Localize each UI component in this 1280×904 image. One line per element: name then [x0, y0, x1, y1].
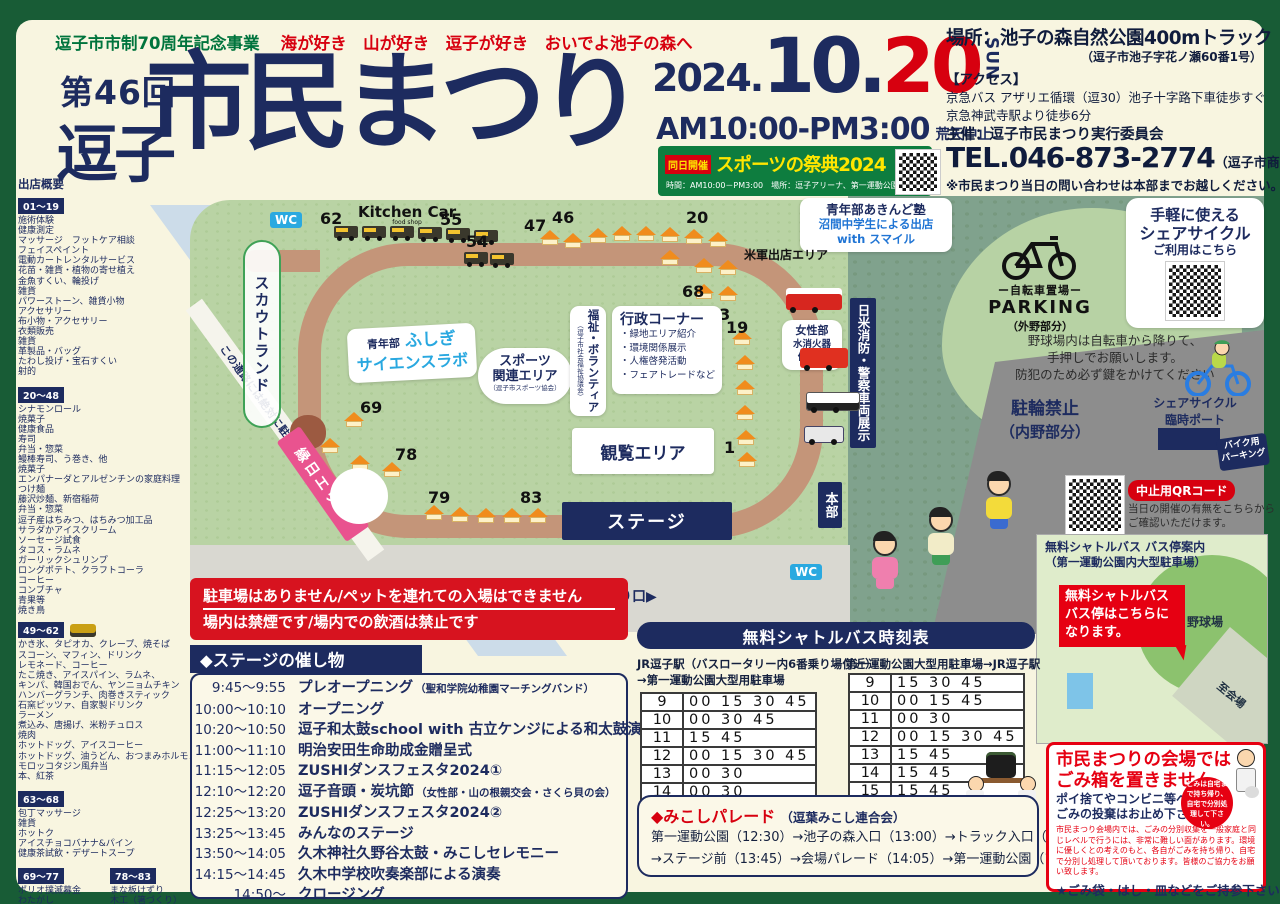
bicycle-parking-label: ー自転車置場ー — [988, 282, 1092, 298]
share-port-line1: シェアサイクル — [1140, 396, 1250, 411]
booth-tent-icon — [588, 228, 608, 243]
sports-qr-code — [896, 150, 940, 194]
women-line1: 女性部 — [782, 324, 842, 338]
garbage-body-text: 市民まつり会場内では、ごみの分別収集を一般家庭と同じレベルで行うには、非常に難し… — [1056, 825, 1256, 878]
science-lab-box: 青年部 ふしぎ サイエンスラボ — [347, 323, 478, 384]
timetable-minutes: 00 30 — [683, 765, 816, 783]
program-title: 久木神社久野谷太鼓・みこしセレモニー — [298, 844, 559, 865]
timetable-row: 12 00 15 30 45 — [641, 747, 816, 765]
booth-number-54: 54 — [466, 232, 488, 251]
booth-number-68: 68 — [682, 282, 704, 301]
booth-item: 木工（箸づくり） — [110, 896, 182, 904]
fire-truck-icon — [786, 288, 842, 310]
program-title: 明治安田生命助成金贈呈式 — [298, 741, 472, 762]
rules-line-1: 駐車場はありません/ペットを連れての入場はできません — [203, 584, 615, 610]
program-time: 13:25～13:45 — [192, 824, 286, 845]
timetable-hour: 9 — [641, 693, 683, 711]
timetable-minutes: 00 15 30 45 — [891, 728, 1024, 746]
kitchen-truck-icon — [362, 226, 386, 238]
stage-program-row: 11:00～11:10 明治安田生命助成金贈呈式 — [192, 741, 626, 762]
booth-number-20: 20 — [686, 208, 708, 227]
stage-program-row: 14:50～ クロージング — [192, 885, 626, 904]
booth-tent-icon — [502, 508, 522, 523]
share-cycle-box: 手軽に使える シェアサイクル ご利用はこちら — [1126, 198, 1264, 328]
kitchen-truck-icon — [490, 253, 514, 265]
stage-program-row: 13:25～13:45 みんなのステージ — [192, 824, 626, 845]
booth-item: 雑貨 — [18, 337, 190, 347]
program-time: 13:50～14:05 — [192, 844, 286, 865]
minimap-title-line2: （第一運動公園内大型駐車場） — [1045, 555, 1206, 570]
parade-org: （逗葉みこし連合会） — [780, 810, 905, 825]
sports-area-cloud: スポーツ 関連エリア （逗子市スポーツ協会） — [478, 348, 572, 404]
cyclist-illustration — [1182, 340, 1252, 396]
booth-item: ホットク — [18, 829, 190, 839]
kitchen-truck-icon — [418, 227, 442, 239]
gov-corner-item: ・フェアトレードなど — [620, 369, 722, 383]
booth-tent-icon — [563, 233, 583, 248]
share-cycle-line3: ご利用はこちら — [1126, 243, 1264, 258]
viewing-area-label: 観覧エリア — [601, 439, 686, 464]
booth-tent-icon — [718, 260, 738, 275]
cancel-qr-note: 当日の開催の有無をこちらから ご確認いただけます。 — [1128, 502, 1275, 530]
program-title: 久木中学校吹奏楽部による演奏 — [298, 865, 501, 886]
booth-item: 布小物・アクセサリー — [18, 317, 190, 327]
timetable-minutes: 00 30 — [891, 710, 1024, 728]
booth-item: アイスチョコバナナ&パイン — [18, 839, 190, 849]
booth-item: 健康測定 — [18, 226, 190, 236]
booth-tent-icon — [528, 508, 548, 523]
stage-program-row: 11:15～12:05 ZUSHIダンスフェスタ2024① — [192, 761, 626, 782]
booth-range-badge-5: 69～77 — [18, 868, 64, 884]
program-time: 12:25～13:20 — [192, 803, 286, 824]
kitchen-truck-icon — [390, 226, 414, 238]
booth-number-83: 83 — [520, 488, 542, 507]
poster-title: 市民まつり — [146, 50, 636, 156]
viewing-area-box: 観覧エリア — [572, 428, 714, 474]
date-month: 10. — [762, 36, 882, 95]
booth-item: ロングポテト、クラフトコーラ — [18, 566, 190, 576]
kitchen-truck-icon — [464, 252, 488, 264]
sports-area-line1: スポーツ — [478, 354, 572, 369]
timetable-row: 9 15 30 45 — [849, 674, 1024, 692]
stage-program-box: 9:45～9:55 プレオープニング （聖和学院幼稚園マーチングバンド） 10:… — [190, 673, 628, 899]
timetable-minutes: 15 30 45 — [891, 674, 1024, 692]
gov-corner-item: ・緑地エリア紹介 — [620, 328, 722, 342]
garbage-notice-box: 市民まつりの会場では ごみ箱を置きません ポイ捨てやコンビニ等への ごみの投棄は… — [1046, 742, 1266, 892]
garbage-circle-note: ごみは自宅まで持ち帰り、自宅で分別処理して下さい。 — [1181, 777, 1233, 829]
program-time: 12:10～12:20 — [192, 782, 286, 803]
booth-tent-icon — [694, 258, 714, 273]
police-motorcycle-icon — [804, 426, 844, 443]
booth-number-47: 47 — [524, 216, 546, 235]
shuttle-to-station-caption: 第一運動公園大型用駐車場→JR逗子駅 — [845, 656, 1040, 672]
timetable-row: 13 00 30 — [641, 765, 816, 783]
program-time: 14:50～ — [192, 885, 286, 904]
booth-tent-icon — [735, 405, 755, 420]
booth-range-badge-3: 49～62 — [18, 622, 64, 638]
booth-item: パワーストーン、雑貨小物 — [18, 297, 190, 307]
booth-list-5: ポリオ撲滅募金わたがし海産物展示青果販売焼きそばバザー — [18, 886, 100, 904]
stage-program-row: 12:10～12:20 逗子音頭・炭坑節 （女性部・山の根親交会・さくら貝の会） — [192, 782, 626, 804]
stage-area-label: ステージ — [607, 508, 687, 534]
booth-list-title: 出店概要 — [18, 176, 190, 192]
us-army-area-label: 米軍出店エリア — [744, 246, 828, 263]
scoutland-label: スカウトランド — [252, 275, 273, 394]
gov-corner-item: ・人権啓発活動 — [620, 355, 722, 369]
booth-item: ラーメン — [18, 711, 190, 721]
booth-item: マッサージ フットケア相談 — [18, 236, 190, 246]
booth-item: 焼菓子 — [18, 465, 190, 475]
bicycle-parking-sign: ー自転車置場ー PARKING （外野部分） — [988, 282, 1092, 334]
booth-item: かき氷、タピオカ、クレープ、焼そば — [18, 640, 190, 650]
booth-list-1: 施術体験健康測定マッサージ フットケア相談フェイスペイント電動カートレンタルサー… — [18, 216, 190, 378]
timetable-minutes: 00 15 45 — [891, 692, 1024, 710]
access-line-1: 京急バス アザリエ循環（逗30）池子十字路下車徒歩すぐ — [946, 87, 1266, 106]
timetable-hour: 13 — [849, 746, 891, 764]
booth-item: エンパナーダとアルゼンチンの家庭料理 — [18, 475, 190, 485]
science-line1: 青年部 — [367, 337, 401, 352]
hq-sign: 本部 — [818, 482, 842, 528]
booth-list-3: かき氷、タピオカ、クレープ、焼そばスコーン、マフィン、ドリンクレモネード、コーヒ… — [18, 640, 190, 781]
program-time: 11:15～12:05 — [192, 761, 286, 782]
booth-list-6: まな板けずり木工（箸づくり）ガス器具展示住宅相談会野菜摂取量測定 — [110, 886, 182, 904]
share-port-block — [1158, 428, 1220, 450]
cancel-qr-badge-label: 中止用QRコード — [1136, 484, 1227, 498]
wc-badge-north: WC — [270, 212, 302, 228]
booth-list-4: 包丁マッサージ雑貨ホットクアイスチョコバナナ&パイン健康茶試飲・デザートスープ — [18, 809, 190, 859]
program-title: オープニング — [298, 700, 384, 721]
booth-range-badge-2: 20～48 — [18, 387, 64, 403]
program-time: 11:00～11:10 — [192, 741, 286, 762]
shuttle-to-park-caption1: JR逗子駅（バスロータリー内6番乗り場付近） — [637, 656, 877, 672]
booth-item: 包丁マッサージ — [18, 809, 190, 819]
booth-item: ハンバーグランチ、肉巻きスティック — [18, 691, 190, 701]
sports-area-line3: （逗子市スポーツ協会） — [478, 384, 572, 393]
booth-tent-icon — [684, 229, 704, 244]
shuttle-stop-minimap: 無料シャトルバス バス停案内 （第一運動公園内大型駐車場） 野球場 無料シャトル… — [1036, 534, 1268, 744]
akindo-box: 青年部あきんど塾 沼間中学生による出店 with スマイル — [800, 198, 952, 252]
sports-festival-title: スポーツの祭典2024 — [716, 151, 886, 177]
scoutland-sign: スカウトランド — [243, 240, 281, 428]
kitchen-car-title: Kitchen Car — [358, 206, 456, 219]
timetable-hour: 10 — [849, 692, 891, 710]
gov-corner-item: ・環境関係展示 — [620, 342, 722, 356]
timetable-minutes: 15 45 — [683, 729, 816, 747]
minimap-callout-1: 無料シャトルバス — [1065, 588, 1179, 606]
welfare-org: （逗子市社会福祉協議会） — [575, 322, 585, 400]
booth-item: モロッコタジン風弁当 — [18, 762, 190, 772]
booth-item: つけ麺 — [18, 485, 190, 495]
booth-item: 逗子産はちみつ、はちみつ加工品 — [18, 516, 190, 526]
child-illustration — [872, 532, 898, 589]
booth-item: 焼き鳥 — [18, 606, 190, 616]
booth-item: 射的 — [18, 367, 190, 377]
timetable-row: 10 00 30 45 — [641, 711, 816, 729]
stage-program-rows: 9:45～9:55 プレオープニング （聖和学院幼稚園マーチングバンド） 10:… — [192, 678, 626, 904]
booth-range-badge-1: 01～19 — [18, 198, 64, 214]
wc-badge-east: WC — [790, 564, 822, 580]
booth-tent-icon — [636, 226, 656, 241]
fire-van-icon — [800, 348, 848, 368]
booth-number-78: 78 — [395, 445, 417, 464]
tel-number: TEL.046-873-2774 — [946, 141, 1215, 174]
share-port-label: シェアサイクル 臨時ポート — [1140, 396, 1250, 428]
booth-item: 雑貨 — [18, 819, 190, 829]
booth-item: 本、紅茶 — [18, 772, 190, 782]
garbage-footer: ★ごみ袋・はし・皿などをご持参下さい。 — [1056, 880, 1256, 899]
booth-item: 健康茶試飲・デザートスープ — [18, 849, 190, 859]
booth-number-46: 46 — [552, 208, 574, 227]
timetable-row: 12 00 15 30 45 — [849, 728, 1024, 746]
booth-tent-icon — [450, 507, 470, 522]
booth-number-19: 19 — [726, 318, 748, 337]
booth-item: 石窯ピッツァ、自家製ドリンク — [18, 701, 190, 711]
share-port-line2: 臨時ポート — [1140, 411, 1250, 428]
share-cycle-line2: シェアサイクル — [1126, 224, 1264, 243]
kitchen-car-label: Kitchen Car food shop — [358, 206, 456, 226]
program-title: 逗子和太鼓school with 古立ケンジによる和太鼓演奏 — [298, 720, 656, 741]
garbage-title-1: 市民まつりの会場では — [1056, 750, 1256, 771]
cancel-qr-note-2: ご確認いただけます。 — [1128, 516, 1275, 530]
minimap-field-label: 野球場 — [1187, 613, 1223, 630]
booth-item: 焼菓子 — [18, 415, 190, 425]
booth-item: 電動カートレンタルサービス — [18, 256, 190, 266]
akindo-line1: 青年部あきんど塾 — [800, 202, 952, 217]
program-title: プレオープニング — [298, 678, 413, 699]
stage-program-row: 14:15～14:45 久木中学校吹奏楽部による演奏 — [192, 865, 626, 886]
booth-item: サラダかアイスクリーム — [18, 526, 190, 536]
timetable-hour: 12 — [641, 747, 683, 765]
no-bicycle-line2: （内野部分） — [985, 421, 1105, 442]
date-year: 2024. — [652, 61, 762, 95]
booth-tent-icon — [612, 226, 632, 241]
booth-tent-icon — [737, 452, 757, 467]
booth-tent-icon — [736, 430, 756, 445]
shuttle-header: 無料シャトルバス時刻表 — [637, 622, 1035, 649]
booth-tent-icon — [424, 505, 444, 520]
bicycle-parking-en: PARKING — [988, 298, 1092, 318]
timetable-row: 9 00 15 30 45 — [641, 693, 816, 711]
gov-corner-box: 行政コーナー ・緑地エリア紹介・環境関係展示・人権啓発活動・フェアトレードなど — [612, 306, 722, 394]
booth-item: 煮込み、唐揚げ、米粉チュロス — [18, 721, 190, 731]
stage-program-row: 10:00～10:10 オープニング — [192, 700, 626, 721]
booth-tent-icon — [708, 232, 728, 247]
hq-label: 本部 — [821, 492, 840, 518]
booth-item: 革製品・バッグ — [18, 347, 190, 357]
booth-list-sidebar: 出店概要 01～19 施術体験健康測定マッサージ フットケア相談フェイスペイント… — [18, 176, 190, 904]
program-time: 14:15～14:45 — [192, 865, 286, 886]
festival-poster: この通路には絶対に駐車しないでください 逗子市市制70周年記念事業 海が好き 山… — [0, 0, 1280, 904]
booth-item: たわし投げ・宝石すくい — [18, 357, 190, 367]
program-note: （聖和学院幼稚園マーチングバンド） — [415, 679, 594, 700]
garbage-circle-text: ごみは自宅まで持ち帰り、自宅で分別処理して下さい。 — [1185, 778, 1229, 828]
booth-item: 健康食品 — [18, 425, 190, 435]
parade-title: ◆みこしパレード — [651, 807, 775, 826]
timetable-hour: 9 — [849, 674, 891, 692]
timetable-hour: 14 — [849, 764, 891, 782]
program-title: ZUSHIダンスフェスタ2024② — [298, 803, 502, 824]
gov-corner-items: ・緑地エリア紹介・環境関係展示・人権啓発活動・フェアトレードなど — [620, 328, 722, 382]
booth-item: ホットドッグ、油うどん、おつまみホルモン — [18, 752, 190, 762]
share-cycle-qr-code — [1166, 262, 1224, 320]
no-bicycle-label: 駐輪禁止 （内野部分） — [985, 398, 1105, 442]
booth-item: ホットドッグ、アイスコーヒー — [18, 741, 190, 751]
booth-item: 衣類販売 — [18, 327, 190, 337]
fire-police-banner: 日米消防・警察車両展示 — [850, 298, 876, 448]
shuttle-to-park-table: 9 00 15 30 45 10 00 30 45 11 15 45 12 00… — [640, 692, 817, 802]
booth-number-79: 79 — [428, 488, 450, 507]
shuttle-title: 無料シャトルバス時刻表 — [742, 624, 929, 648]
stage-program-header: ◆ステージの催し物 — [190, 645, 422, 673]
parade-route-2: →ステージ前（13:45）→会場パレード（14:05）→第一運動公園（15:45… — [651, 849, 1025, 871]
welfare-box: （逗子市社会福祉協議会） 福祉・ボランティア — [570, 306, 606, 416]
booth-tent-icon — [718, 286, 738, 301]
minimap-pool — [1067, 673, 1093, 709]
minimap-callout: 無料シャトルバス バス停はこちらに なります。 — [1059, 585, 1185, 647]
booth-item: コーヒー — [18, 576, 190, 586]
booth-item: 焼肉 — [18, 731, 190, 741]
booth-item: タコス・ラムネ — [18, 546, 190, 556]
booth-tent-icon — [735, 355, 755, 370]
same-day-badge: 同日開催 — [665, 155, 711, 174]
child-illustration — [928, 508, 954, 565]
booth-item: アクセサリー — [18, 307, 190, 317]
stage-program-row: 9:45～9:55 プレオープニング （聖和学院幼稚園マーチングバンド） — [192, 678, 626, 700]
timetable-hour: 11 — [849, 710, 891, 728]
timetable-row: 11 15 45 — [641, 729, 816, 747]
booth-tent-icon — [660, 250, 680, 265]
booth-item: 施術体験 — [18, 216, 190, 226]
parade-box: ◆みこしパレード （逗葉みこし連合会） 第一運動公園（12:30）→池子の森入口… — [637, 795, 1039, 877]
booth-range-badge-4: 63～68 — [18, 791, 64, 807]
booth-item: 弁当・惣菜 — [18, 445, 190, 455]
tel-row: TEL.046-873-2774 （逗子市商工会） — [946, 141, 1280, 174]
parade-route-1: 第一運動公園（12:30）→池子の森入口（13:00）→トラック入口（13:30… — [651, 827, 1025, 849]
sports-festival-box: 同日開催 スポーツの祭典2024 時間：AM10:00－PM3:00 場所：逗子… — [658, 146, 932, 196]
program-note: （女性部・山の根親交会・さくら貝の会） — [416, 783, 616, 804]
rules-box: 駐車場はありません/ペットを連れての入場はできません 場内は禁煙です/場内での飲… — [190, 578, 628, 640]
booth-item: スコーン、マフィン、ドリンク — [18, 651, 190, 661]
booth-item: 寿司 — [18, 435, 190, 445]
program-title: 逗子音頭・炭坑節 — [298, 782, 414, 803]
booth-tent-icon — [735, 380, 755, 395]
child-illustration — [986, 472, 1012, 529]
shuttle-to-park-caption2: →第一運動公園大型用駐車場 — [637, 672, 785, 688]
timetable-row: 11 00 30 — [849, 710, 1024, 728]
tel-note: （逗子市商工会） — [1215, 152, 1280, 171]
time-row: AM10:00-PM3:00 荒天中止 — [656, 112, 991, 147]
program-time: 10:20～10:50 — [192, 720, 286, 741]
welfare-label: 福祉・ボランティア — [586, 309, 602, 413]
minimap-title: 無料シャトルバス バス停案内 （第一運動公園内大型駐車場） — [1045, 540, 1206, 570]
timetable-minutes: 00 15 30 45 — [683, 747, 816, 765]
program-time: 9:45～9:55 — [192, 678, 286, 699]
booth-tent-icon — [382, 462, 402, 477]
booth-item: たこ焼き、アイスパイン、ラムネ、 — [18, 671, 190, 681]
timetable-minutes: 00 15 30 45 — [683, 693, 816, 711]
venue-address: （逗子市池子字花ノ瀬60番1号） — [946, 48, 1262, 65]
venue-label: 場所：池子の森自然公園400mトラック — [946, 24, 1272, 50]
mikoshi-stage-circle — [330, 468, 388, 524]
program-title: ZUSHIダンスフェスタ2024① — [298, 761, 502, 782]
booth-item: キンパ、韓国おでん、ヤンニョムチキン — [18, 681, 190, 691]
stage-program-row: 13:50～14:05 久木神社久野谷太鼓・みこしセレモニー — [192, 844, 626, 865]
timetable-minutes: 00 30 45 — [683, 711, 816, 729]
booth-item: まな板けずり — [110, 886, 182, 896]
rules-line-2: 場内は禁煙です/場内での飲酒は禁止です — [203, 610, 615, 635]
booth-item: わたがし — [18, 896, 100, 904]
bicycle-icon — [1000, 232, 1080, 280]
booth-number-1: 1 — [724, 438, 735, 457]
stage-program-row: 10:20～10:50 逗子和太鼓school with 古立ケンジによる和太鼓… — [192, 720, 626, 741]
booth-item: 藤沢炒麺、新宿稲荷 — [18, 495, 190, 505]
booth-item: レモネード、コーヒー — [18, 661, 190, 671]
booth-number-62: 62 — [320, 209, 342, 228]
sports-area-line2: 関連エリア — [478, 369, 572, 384]
booth-list-2: シナモンロール焼菓子健康食品寿司弁当・惣菜鰻棒寿司、う巻き、他焼菓子エンパナーダ… — [18, 405, 190, 617]
program-title: みんなのステージ — [298, 824, 414, 845]
program-title: クロージング — [298, 885, 385, 904]
time-label: AM10:00-PM3:00 — [656, 112, 929, 147]
booth-item: 雑貨 — [18, 287, 190, 297]
booth-tent-icon — [660, 227, 680, 242]
science-line2: ふしぎ — [404, 329, 456, 352]
akindo-line3: with スマイル — [800, 232, 952, 247]
gov-corner-title: 行政コーナー — [620, 312, 722, 328]
booth-item: コンブチャ — [18, 586, 190, 596]
kitchen-car-icon — [70, 624, 96, 637]
stage-program-row: 12:25～13:20 ZUSHIダンスフェスタ2024② — [192, 803, 626, 824]
cancel-qr-code — [1066, 476, 1124, 534]
booth-item: 弁当・惣菜 — [18, 505, 190, 515]
booth-item: フェイスペイント — [18, 246, 190, 256]
booth-item: 青果等 — [18, 596, 190, 606]
program-time: 10:00～10:10 — [192, 700, 286, 721]
sports-festival-detail: 時間：AM10:00－PM3:00 場所：逗子アリーナ、第一運動公園 — [658, 177, 932, 191]
access-label: 【アクセス】 — [946, 68, 1026, 88]
akindo-line2: 沼間中学生による出店 — [800, 217, 952, 232]
access-line-2: 京急神武寺駅より徒歩6分 — [946, 105, 1091, 124]
cancel-qr-note-1: 当日の開催の有無をこちらから — [1128, 502, 1275, 516]
booth-number-69: 69 — [360, 398, 382, 417]
timetable-row: 10 00 15 45 — [849, 692, 1024, 710]
booth-item: 鰻棒寿司、う巻き、他 — [18, 455, 190, 465]
stage-area-box: ステージ — [562, 502, 732, 540]
booth-item: シナモンロール — [18, 405, 190, 415]
timetable-hour: 13 — [641, 765, 683, 783]
booth-tent-icon — [476, 508, 496, 523]
timetable-hour: 10 — [641, 711, 683, 729]
police-car-icon — [806, 392, 860, 411]
booth-item: 花苗・雑貨・植物の寄せ植え — [18, 266, 190, 276]
share-cycle-line1: 手軽に使える — [1126, 206, 1264, 224]
minimap-title-line1: 無料シャトルバス バス停案内 — [1045, 540, 1206, 555]
minimap-callout-2: バス停はこちらに — [1065, 606, 1179, 624]
stage-program-title: ◆ステージの催し物 — [200, 647, 344, 671]
booth-item: ポリオ撲滅募金 — [18, 886, 100, 896]
garbage-person-illustration — [1233, 749, 1259, 801]
booth-item: ソーセージ試食 — [18, 536, 190, 546]
cancel-qr-badge: 中止用QRコード — [1128, 480, 1235, 501]
fire-police-label: 日米消防・警察車両展示 — [854, 304, 873, 442]
booth-item: ガーリックシュリンプ — [18, 556, 190, 566]
timetable-hour: 12 — [849, 728, 891, 746]
no-bicycle-line1: 駐輪禁止 — [985, 398, 1105, 421]
minimap-callout-3: なります。 — [1065, 624, 1179, 642]
booth-item: 金魚すくい、輪投げ — [18, 277, 190, 287]
timetable-hour: 11 — [641, 729, 683, 747]
inquiry-note: ※市民まつり当日の問い合わせは本部までお越しください。 — [946, 175, 1280, 194]
